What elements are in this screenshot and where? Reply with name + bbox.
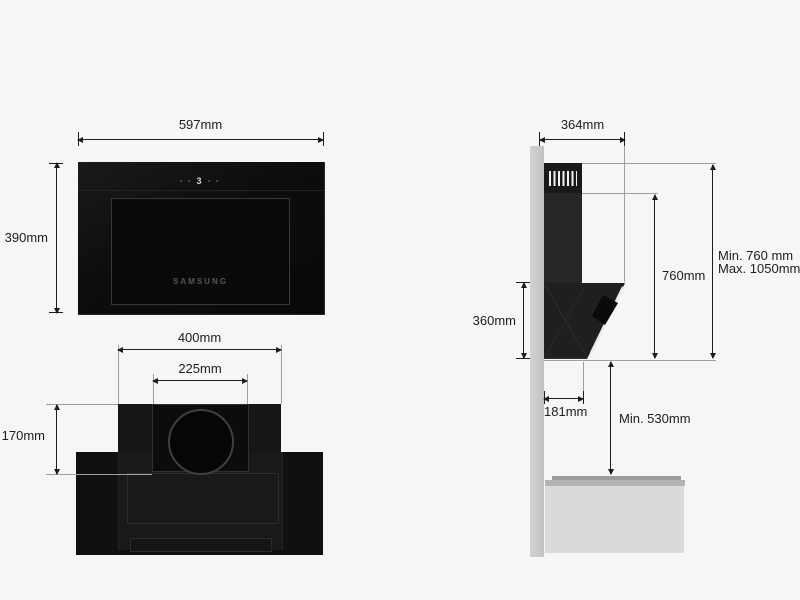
hood-front-panel: 3 SAMSUNG bbox=[78, 162, 325, 315]
display-dot-icon bbox=[208, 180, 210, 182]
extension-line bbox=[118, 345, 119, 404]
dim-tick bbox=[49, 163, 63, 164]
dim-arrow-front-width bbox=[78, 139, 323, 140]
dim-arrow-duct-width bbox=[153, 380, 247, 381]
dim-label-front-height: 390mm bbox=[0, 230, 48, 245]
display-dot-icon bbox=[180, 180, 182, 182]
fan-level-indicator: 3 bbox=[196, 176, 201, 186]
dim-arrow-front-height bbox=[56, 163, 57, 313]
dim-arrow-height-range bbox=[712, 165, 713, 358]
dim-tick bbox=[78, 132, 79, 146]
dim-arrow-bottom-depth bbox=[544, 398, 583, 399]
diagram-canvas: 3 SAMSUNG 597mm 390mm 400mm 225mm 170mm bbox=[0, 0, 800, 600]
dim-arrow-hood-height bbox=[654, 195, 655, 358]
base-cabinet bbox=[545, 486, 684, 553]
hood-inner-outline bbox=[127, 473, 279, 524]
chimney-vent-section bbox=[544, 163, 582, 193]
dim-tick bbox=[323, 132, 324, 146]
dim-arrow-top-depth bbox=[540, 139, 625, 140]
display-dot-icon bbox=[188, 180, 190, 182]
dim-label-bottom-depth: 181mm bbox=[544, 404, 584, 419]
extension-line bbox=[582, 193, 658, 194]
hood-control-display: 3 bbox=[176, 175, 222, 187]
chimney-duct-cover bbox=[544, 193, 582, 283]
hood-glass-panel bbox=[111, 198, 290, 305]
dim-arrow-top-width bbox=[118, 349, 281, 350]
extension-line bbox=[582, 163, 716, 164]
dim-tick bbox=[539, 132, 540, 146]
dim-label-front-section-height: 360mm bbox=[468, 313, 516, 328]
dim-arrow-rear-depth bbox=[56, 405, 57, 474]
dim-label-cooktop-clearance: Min. 530mm bbox=[619, 411, 691, 426]
display-dot-icon bbox=[216, 180, 218, 182]
dim-tick bbox=[49, 312, 63, 313]
dim-label-hood-height: 760mm bbox=[662, 268, 705, 283]
dim-arrow-front-section-height bbox=[523, 283, 524, 358]
hood-body-shape bbox=[544, 283, 625, 359]
extension-line bbox=[624, 146, 625, 282]
hood-rear-slot bbox=[130, 538, 272, 552]
dim-label-height-range-max: Max. 1050mm bbox=[718, 261, 800, 276]
dim-label-front-width: 597mm bbox=[78, 117, 323, 132]
duct-outlet-circle bbox=[168, 409, 234, 475]
dim-label-rear-depth: 170mm bbox=[0, 428, 45, 443]
control-strip-divider bbox=[78, 190, 324, 191]
brand-logo: SAMSUNG bbox=[111, 277, 290, 286]
wall bbox=[530, 146, 544, 557]
dim-arrow-cooktop-clearance bbox=[610, 362, 611, 474]
vent-grille-icon bbox=[549, 171, 577, 186]
extension-line bbox=[544, 360, 716, 361]
hood-body-side-profile bbox=[544, 282, 629, 360]
dim-label-top-width: 400mm bbox=[118, 330, 281, 345]
extension-line bbox=[46, 474, 152, 475]
dim-tick bbox=[624, 132, 625, 146]
dim-label-duct-width: 225mm bbox=[153, 361, 247, 376]
extension-line bbox=[281, 345, 282, 404]
dim-label-top-depth: 364mm bbox=[540, 117, 625, 132]
